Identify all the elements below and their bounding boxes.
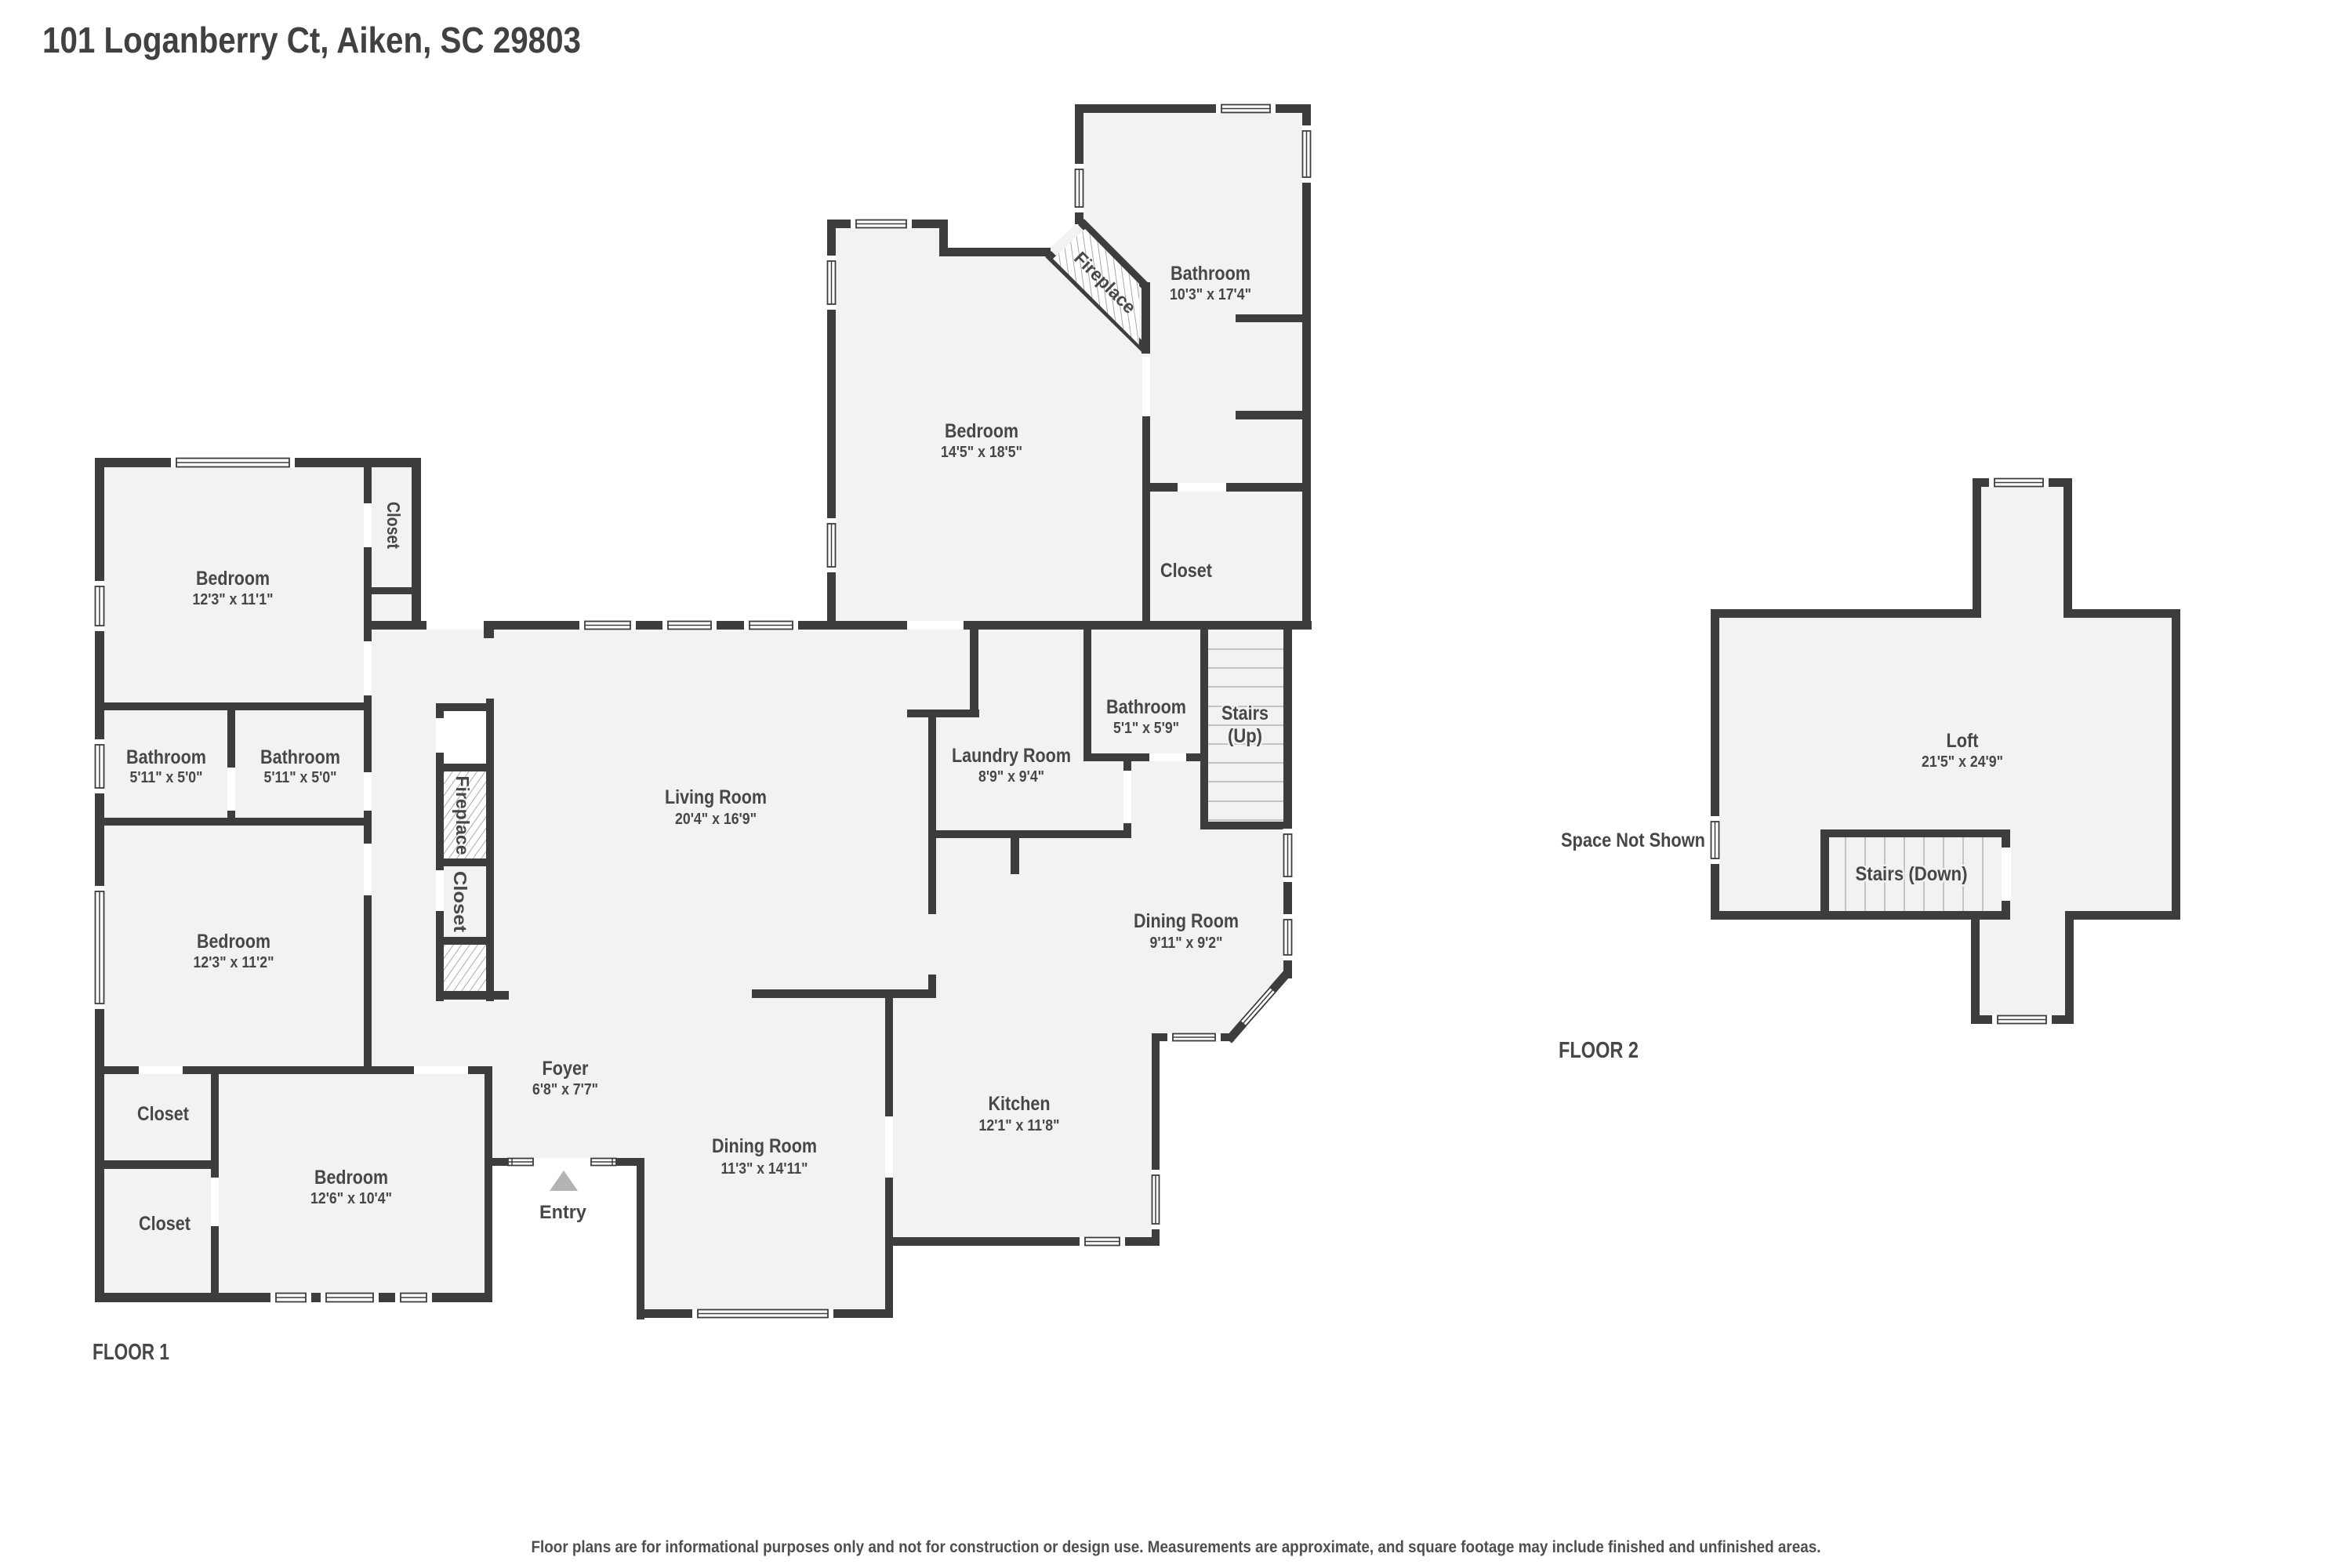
- svg-text:11'3" x 14'11": 11'3" x 14'11": [721, 1160, 808, 1178]
- svg-text:Closet: Closet: [137, 1103, 190, 1125]
- svg-text:Closet: Closet: [450, 871, 470, 932]
- svg-text:12'3" x 11'1": 12'3" x 11'1": [193, 590, 274, 608]
- svg-text:Bedroom: Bedroom: [197, 931, 270, 953]
- svg-text:(Up): (Up): [1228, 725, 1262, 747]
- svg-text:14'5" x 18'5": 14'5" x 18'5": [941, 443, 1022, 461]
- svg-text:Closet: Closet: [1160, 560, 1213, 582]
- svg-text:Bathroom: Bathroom: [1106, 696, 1186, 718]
- svg-text:Laundry Room: Laundry Room: [952, 745, 1071, 767]
- svg-text:Bathroom: Bathroom: [260, 746, 340, 768]
- svg-text:Bedroom: Bedroom: [314, 1167, 388, 1189]
- svg-text:10'3" x 17'4": 10'3" x 17'4": [1170, 285, 1251, 303]
- svg-text:5'11" x 5'0": 5'11" x 5'0": [264, 768, 337, 786]
- svg-text:Foyer: Foyer: [543, 1058, 589, 1080]
- svg-text:12'6" x 10'4": 12'6" x 10'4": [310, 1189, 392, 1207]
- svg-text:Fireplace: Fireplace: [452, 776, 473, 855]
- svg-text:Stairs: Stairs: [1221, 702, 1269, 724]
- svg-text:FLOOR 2: FLOOR 2: [1559, 1038, 1639, 1063]
- svg-text:Bathroom: Bathroom: [126, 746, 206, 768]
- svg-text:9'11" x 9'2": 9'11" x 9'2": [1150, 934, 1223, 952]
- svg-text:Floor plans are for informatio: Floor plans are for informational purpos…: [532, 1538, 1821, 1556]
- svg-text:Bedroom: Bedroom: [196, 568, 270, 590]
- svg-text:Dining Room: Dining Room: [1134, 910, 1239, 932]
- svg-text:20'4" x 16'9": 20'4" x 16'9": [675, 810, 757, 828]
- svg-text:12'3" x 11'2": 12'3" x 11'2": [194, 953, 274, 971]
- svg-text:Dining Room: Dining Room: [712, 1135, 817, 1157]
- svg-text:5'11" x 5'0": 5'11" x 5'0": [130, 768, 203, 786]
- svg-text:21'5" x 24'9": 21'5" x 24'9": [1922, 753, 2003, 771]
- svg-text:8'9" x 9'4": 8'9" x 9'4": [978, 768, 1044, 786]
- svg-text:Closet: Closet: [139, 1213, 191, 1235]
- svg-text:Stairs (Down): Stairs (Down): [1856, 863, 1968, 885]
- svg-text:Kitchen: Kitchen: [989, 1093, 1051, 1115]
- svg-text:101 Loganberry Ct, Aiken, SC 2: 101 Loganberry Ct, Aiken, SC 29803: [42, 20, 581, 60]
- svg-text:Closet: Closet: [383, 502, 404, 549]
- svg-text:Living Room: Living Room: [665, 786, 767, 808]
- svg-text:6'8" x 7'7": 6'8" x 7'7": [532, 1080, 598, 1098]
- svg-text:Entry: Entry: [539, 1202, 587, 1223]
- svg-text:Bedroom: Bedroom: [945, 420, 1018, 442]
- svg-text:5'1" x 5'9": 5'1" x 5'9": [1113, 719, 1179, 737]
- svg-text:FLOOR 1: FLOOR 1: [93, 1340, 169, 1365]
- svg-text:12'1" x 11'8": 12'1" x 11'8": [979, 1116, 1060, 1134]
- svg-text:Space Not Shown: Space Not Shown: [1561, 829, 1705, 851]
- svg-text:Bathroom: Bathroom: [1171, 263, 1250, 285]
- svg-text:Loft: Loft: [1947, 730, 1980, 752]
